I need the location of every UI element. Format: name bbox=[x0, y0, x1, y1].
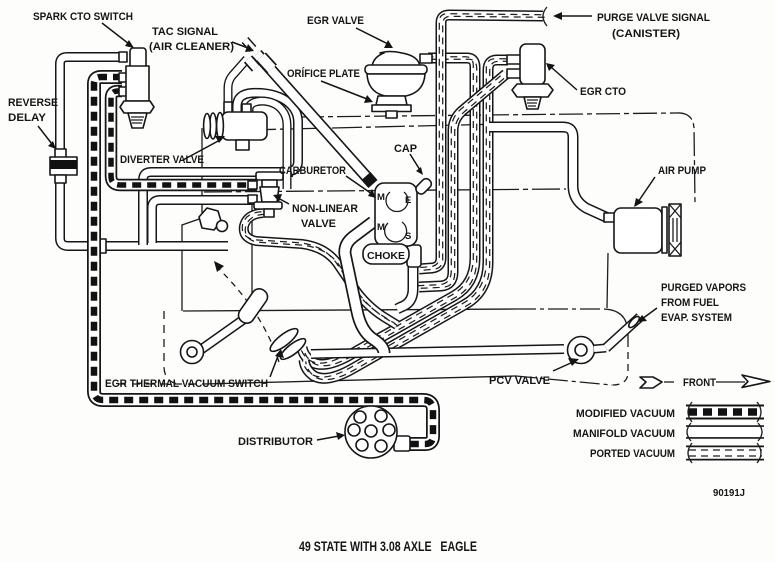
svg-text:MODIFIED VACUUM: MODIFIED VACUUM bbox=[576, 408, 675, 420]
svg-text:49 STATE WITH 3.08 AXLE EAGL: 49 STATE WITH 3.08 AXLE EAGLE bbox=[299, 539, 477, 554]
svg-text:EGR VALVE: EGR VALVE bbox=[307, 15, 364, 27]
svg-text:FRONT: FRONT bbox=[683, 377, 716, 389]
svg-text:FROM FUEL: FROM FUEL bbox=[661, 297, 719, 309]
svg-text:(CANISTER): (CANISTER) bbox=[612, 28, 680, 40]
svg-text:CHOKE: CHOKE bbox=[367, 250, 405, 262]
svg-text:EVAP. SYSTEM: EVAP. SYSTEM bbox=[661, 312, 732, 324]
svg-text:CARBURETOR: CARBURETOR bbox=[279, 165, 346, 177]
svg-text:S: S bbox=[405, 231, 411, 242]
svg-text:TAC SIGNAL: TAC SIGNAL bbox=[152, 26, 218, 38]
svg-text:PCV VALVE: PCV VALVE bbox=[489, 375, 550, 387]
svg-text:EGR THERMAL VACUUM SWITCH: EGR THERMAL VACUUM SWITCH bbox=[105, 378, 268, 390]
svg-text:AIR PUMP: AIR PUMP bbox=[658, 165, 706, 177]
svg-text:PURGED VAPORS: PURGED VAPORS bbox=[661, 282, 746, 294]
svg-text:SPARK CTO SWITCH: SPARK CTO SWITCH bbox=[33, 11, 133, 23]
svg-text:VALVE: VALVE bbox=[301, 218, 336, 230]
svg-text:90191J: 90191J bbox=[713, 488, 745, 499]
svg-text:CAP: CAP bbox=[394, 143, 417, 155]
svg-text:EGR CTO: EGR CTO bbox=[580, 86, 626, 98]
svg-text:MANIFOLD VACUUM: MANIFOLD VACUUM bbox=[573, 428, 675, 440]
svg-text:(AIR CLEANER): (AIR CLEANER) bbox=[149, 41, 234, 53]
svg-text:M: M bbox=[377, 192, 385, 203]
svg-text:E: E bbox=[405, 195, 411, 206]
svg-text:DISTRIBUTOR: DISTRIBUTOR bbox=[238, 436, 313, 448]
svg-text:REVERSE: REVERSE bbox=[8, 97, 58, 109]
svg-text:PURGE VALVE SIGNAL: PURGE VALVE SIGNAL bbox=[597, 12, 710, 24]
svg-text:ORÍFICE PLATE: ORÍFICE PLATE bbox=[287, 67, 360, 80]
svg-text:PORTED VACUUM: PORTED VACUUM bbox=[590, 448, 675, 460]
svg-text:NON-LINEAR: NON-LINEAR bbox=[292, 203, 358, 215]
svg-text:DELAY: DELAY bbox=[8, 112, 47, 124]
svg-text:M: M bbox=[377, 222, 385, 233]
